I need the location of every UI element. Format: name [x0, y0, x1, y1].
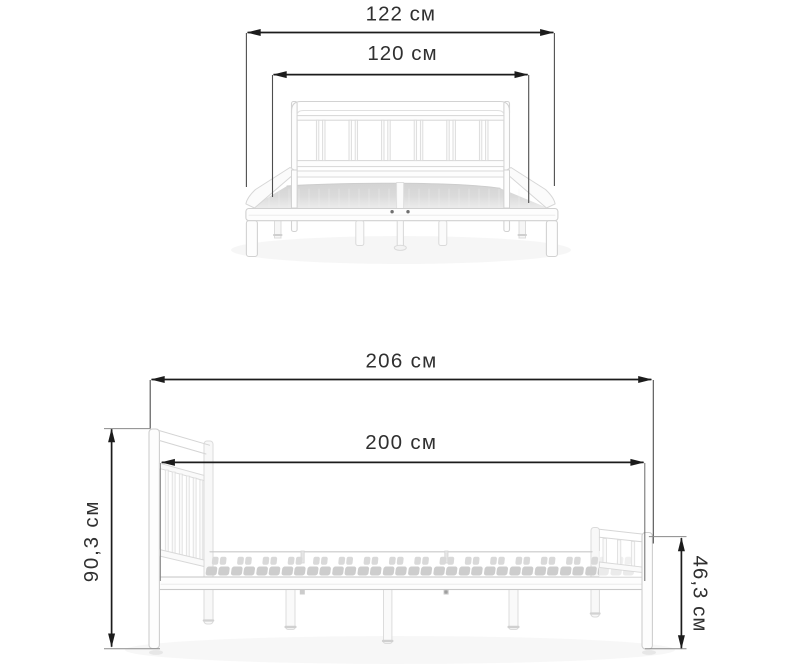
svg-text:206 см: 206 см	[365, 350, 437, 373]
svg-text:90,3 см: 90,3 см	[80, 500, 103, 583]
svg-text:122 см: 122 см	[366, 3, 436, 26]
svg-text:46,3 см: 46,3 см	[689, 556, 712, 633]
svg-text:200 см: 200 см	[365, 431, 437, 454]
svg-text:120 см: 120 см	[367, 42, 437, 65]
